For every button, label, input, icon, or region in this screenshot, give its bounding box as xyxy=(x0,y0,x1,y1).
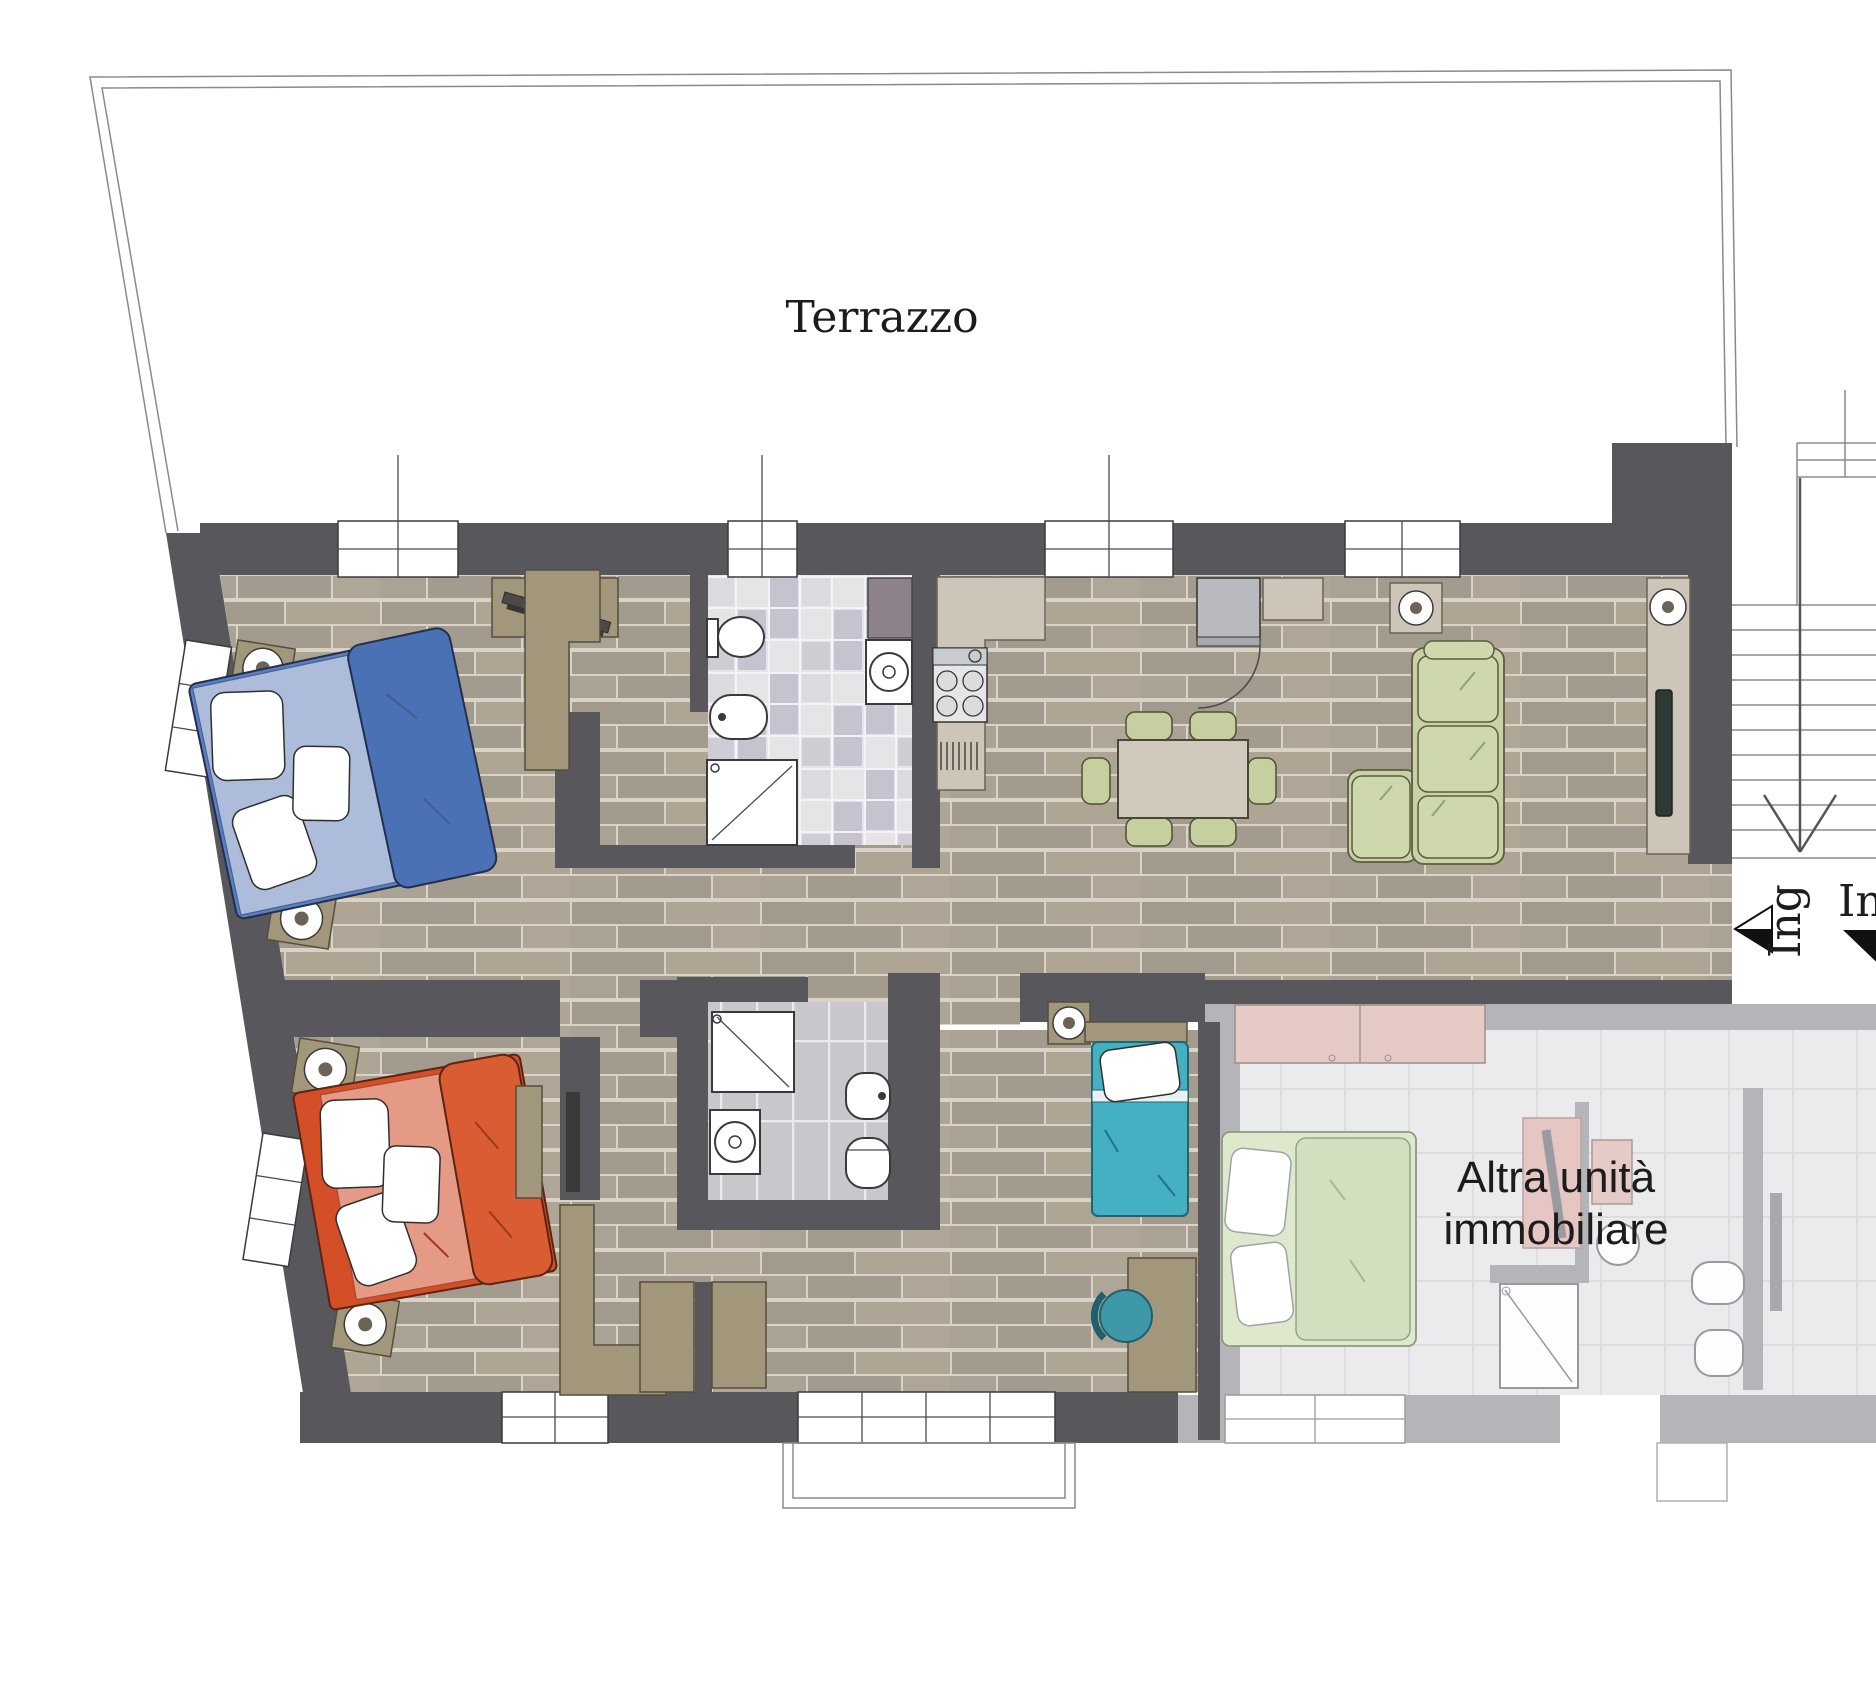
bidet-icon xyxy=(846,1073,890,1119)
other-unit-balconet xyxy=(1657,1443,1727,1501)
window-top-4 xyxy=(1345,521,1460,577)
headboard xyxy=(1085,1022,1187,1042)
wardrobe xyxy=(640,1282,694,1392)
nightstand xyxy=(1048,1002,1090,1044)
bidet-icon xyxy=(710,695,767,739)
terrace-label: Terrazzo xyxy=(785,292,978,343)
french-door-balcony xyxy=(798,1392,1055,1443)
tv-icon xyxy=(1656,690,1672,816)
dining-chair xyxy=(1248,758,1276,804)
window-top-1 xyxy=(338,455,458,577)
other-unit-label-line2: immobiliare xyxy=(1444,1205,1669,1254)
toilet-icon xyxy=(1695,1330,1743,1376)
floor-plan: Terrazzo xyxy=(0,0,1876,1682)
tv-icon xyxy=(566,1092,580,1192)
ceiling-lamp-icon xyxy=(1390,583,1442,633)
dining-table xyxy=(1118,740,1248,818)
terrace: Terrazzo xyxy=(90,70,1737,533)
shower-icon xyxy=(712,1012,794,1092)
sink-icon xyxy=(866,640,912,704)
toilet-icon xyxy=(707,617,764,657)
oven-vent xyxy=(941,742,977,770)
radiator xyxy=(1770,1193,1782,1311)
entrance-arrow-2-icon xyxy=(1843,930,1876,975)
entrance-jamb xyxy=(1688,850,1732,864)
stove-icon xyxy=(933,648,987,722)
dining-chair xyxy=(1126,712,1172,740)
toilet-icon xyxy=(846,1138,890,1188)
tv-console xyxy=(1647,578,1690,854)
single-bed-teal xyxy=(1092,1041,1188,1216)
shower-icon xyxy=(707,760,797,845)
entrance-label-2: In xyxy=(1838,876,1876,927)
dining-chair xyxy=(1190,818,1236,846)
wardrobe xyxy=(712,1282,766,1388)
entrance-markers: Ing In xyxy=(1735,876,1876,975)
sideboard xyxy=(516,1086,542,1198)
window-top-2 xyxy=(728,455,797,577)
other-unit-label-line1: Altra unità xyxy=(1457,1153,1656,1202)
bidet-icon xyxy=(1692,1262,1744,1304)
floor-plan-drawing: Terrazzo xyxy=(0,0,1876,1682)
stairs-down-arrow-icon xyxy=(1764,478,1836,852)
window-bottom xyxy=(502,1392,608,1443)
dining-chair xyxy=(1082,758,1110,804)
unit-wardrobe xyxy=(1235,1005,1485,1063)
balcony-outline xyxy=(783,1443,1075,1508)
dining-chair xyxy=(1126,818,1172,846)
shower-icon xyxy=(1500,1284,1578,1388)
laundry-column xyxy=(868,578,912,638)
unit-double-bed xyxy=(1222,1132,1416,1346)
dining-chair xyxy=(1190,712,1236,740)
desk-chair xyxy=(1094,1290,1152,1342)
window-top-3 xyxy=(1045,455,1173,577)
entrance-label: Ing xyxy=(1760,884,1811,958)
stairwell xyxy=(1732,390,1876,858)
window-other-unit xyxy=(1225,1395,1405,1443)
kitchen-cabinet xyxy=(1263,578,1323,620)
sink-icon xyxy=(710,1110,760,1174)
